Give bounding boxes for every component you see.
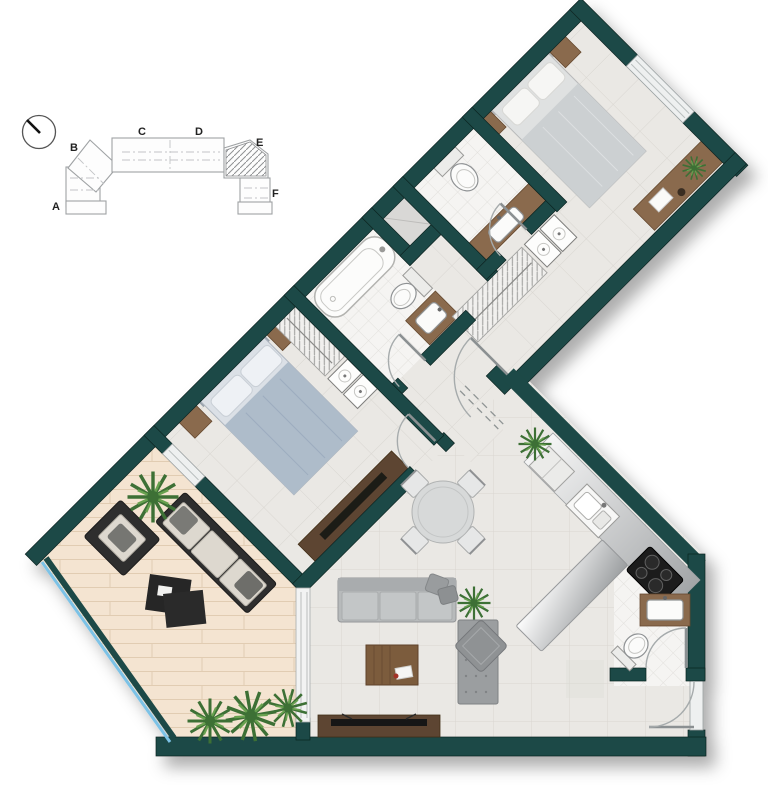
keyplan-unit-label-e: E [256, 137, 263, 149]
apartment-plan [25, 0, 758, 756]
living-floor-shade [566, 660, 604, 698]
dining-table-icon [412, 481, 474, 543]
keyplan-unit-label-f: F [272, 188, 279, 200]
floor-plan-image: A B C D E F [0, 0, 768, 795]
sofa-icon [338, 573, 459, 622]
keyplan-unit-label-b: B [70, 142, 78, 154]
floor-plan-page: A B C D E F [0, 0, 768, 795]
coffee-table-icon [163, 590, 206, 628]
north-indicator-icon [23, 116, 56, 149]
entrance-opening [690, 680, 703, 730]
keyplan-unit-label-c: C [138, 126, 146, 138]
dining-set [401, 470, 485, 554]
keyplan-building [66, 138, 272, 214]
coffee-table-icon [366, 645, 418, 685]
keyplan-unit-label-d: D [195, 126, 203, 138]
entrance-floor [614, 686, 692, 738]
tv-console-icon [318, 714, 440, 737]
keyplan-unit-label-a: A [52, 201, 60, 213]
sliding-door-icon [296, 588, 310, 722]
keyplan: A B C D E F [23, 116, 280, 215]
